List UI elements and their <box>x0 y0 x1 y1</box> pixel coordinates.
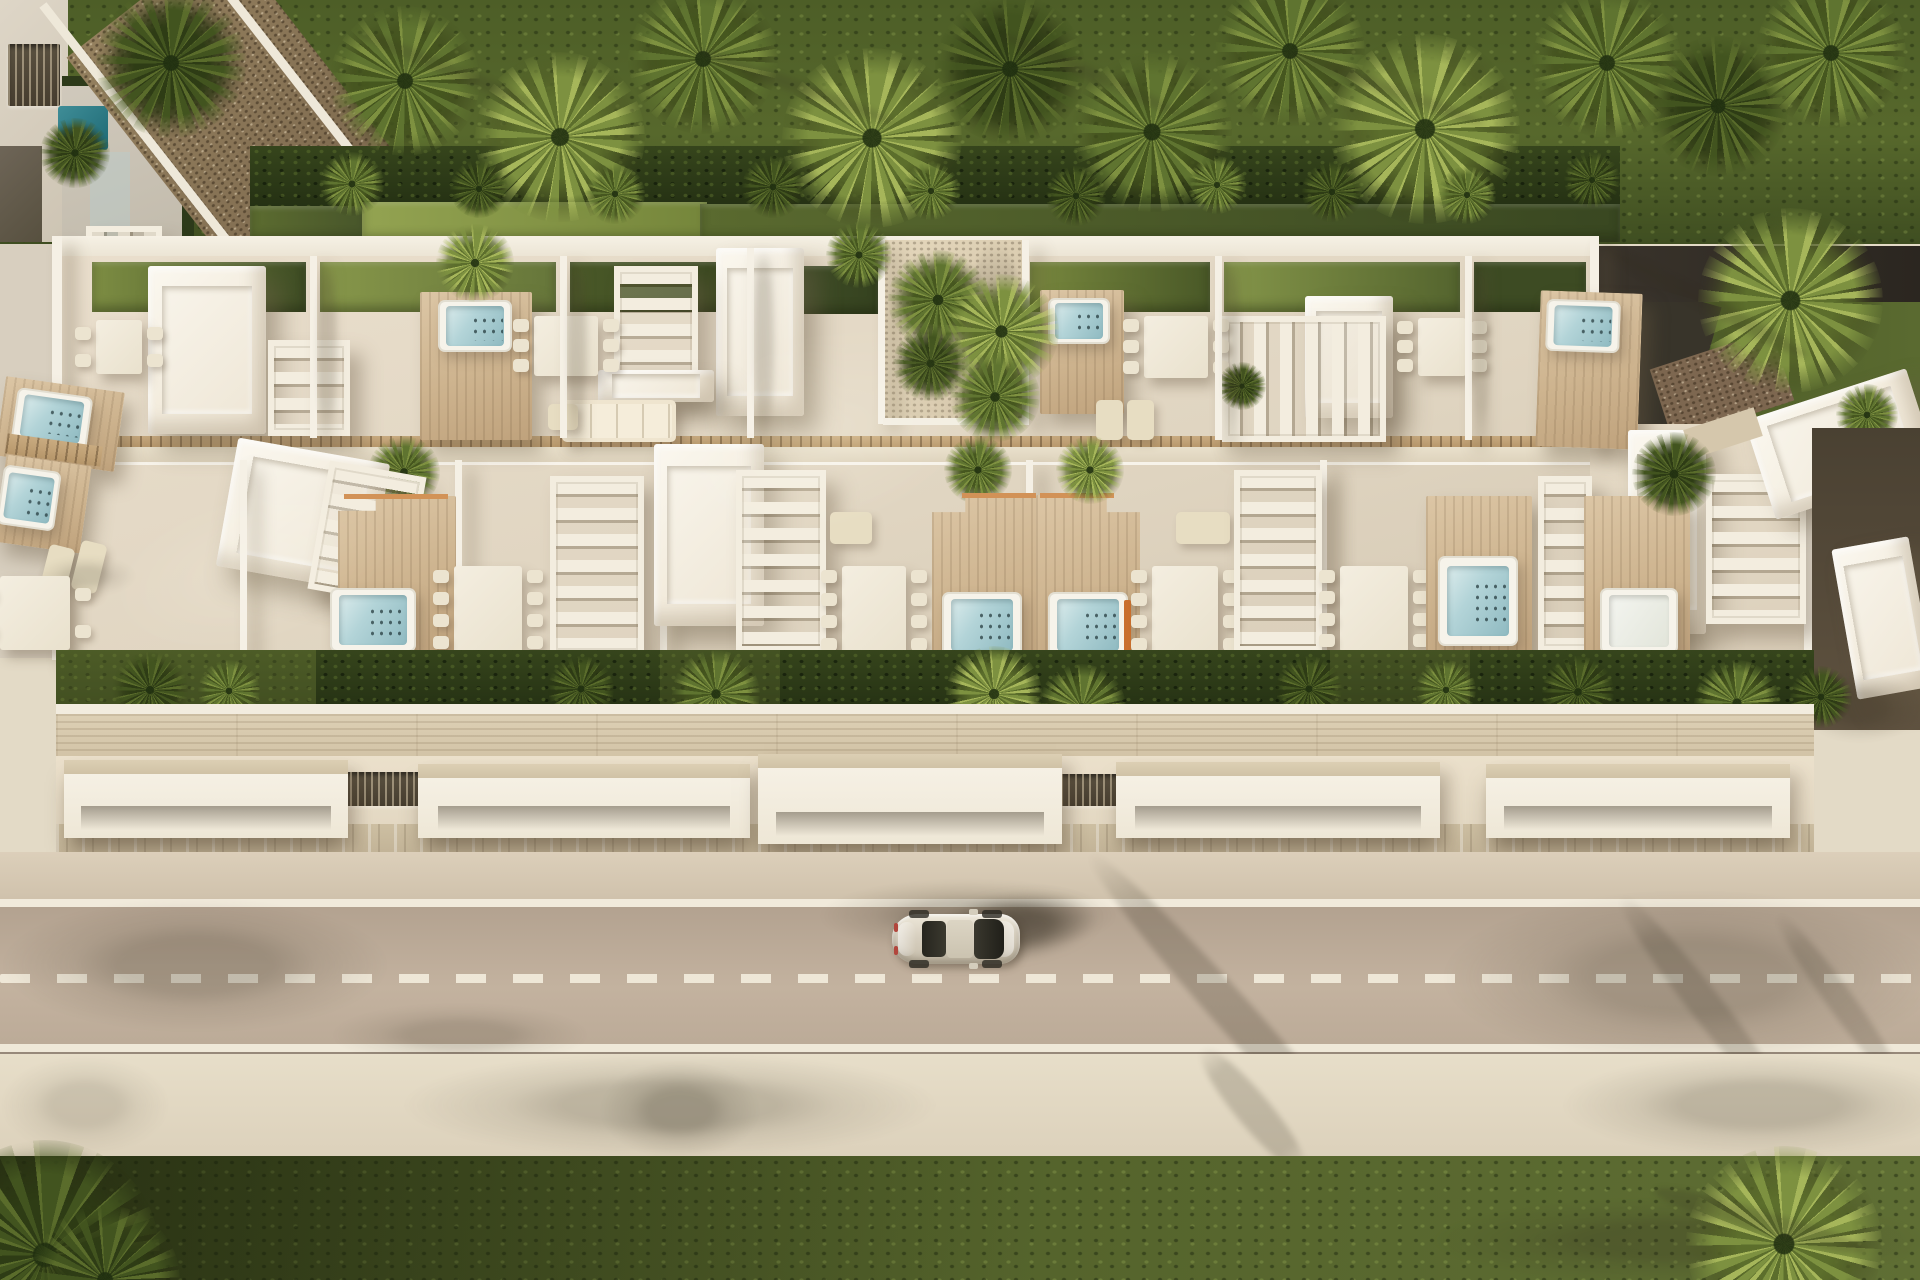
jacuzzi-water <box>1609 595 1670 647</box>
aerial-render <box>0 0 1920 1280</box>
garden-palm <box>935 0 1085 144</box>
neighbor-window <box>8 44 60 106</box>
sun-lounger <box>1096 400 1123 440</box>
chair <box>1397 321 1413 334</box>
chair <box>1397 359 1413 372</box>
chair <box>911 638 927 651</box>
roof-box <box>148 266 266 434</box>
wall-shadow <box>317 258 337 436</box>
jacuzzi-jets <box>1578 314 1611 341</box>
chair <box>603 339 619 352</box>
sidewalk-shadow <box>600 1062 760 1158</box>
chair <box>433 636 449 649</box>
jacuzzi-jets <box>977 610 1012 643</box>
path-palm <box>1632 432 1716 516</box>
chair <box>1397 340 1413 353</box>
party-wall <box>310 256 317 438</box>
wall-shadow <box>1472 258 1490 438</box>
garden-bush <box>902 162 960 220</box>
chair <box>527 570 543 583</box>
jacuzzi-jets <box>23 484 52 517</box>
dining-table <box>842 566 906 656</box>
chair <box>1123 319 1139 332</box>
car-taillight <box>894 946 898 955</box>
neighbor-bush <box>40 118 110 188</box>
jacuzzi-jets <box>471 315 504 341</box>
facade-canopy <box>64 760 348 838</box>
car-mirror <box>969 963 978 969</box>
chair <box>821 615 837 628</box>
dining-table <box>96 320 142 374</box>
garden-bush <box>450 160 508 218</box>
stair-pergola <box>550 476 644 656</box>
garden-bush <box>320 152 384 216</box>
car-rear-glass <box>922 921 946 957</box>
garden-bush <box>1188 156 1246 214</box>
chair <box>821 638 837 651</box>
chair <box>147 327 163 340</box>
facade-canopy <box>758 754 1062 844</box>
chair <box>1123 340 1139 353</box>
chair <box>75 327 91 340</box>
facade-travertine <box>56 714 1814 758</box>
chair <box>1131 570 1147 583</box>
chair <box>527 614 543 627</box>
path-palm-large <box>1698 208 1883 393</box>
chair <box>513 359 529 372</box>
garden-bush <box>585 164 645 224</box>
chair <box>513 339 529 352</box>
chair <box>75 354 91 367</box>
garden-bush <box>1046 166 1106 226</box>
chair <box>911 570 927 583</box>
garden-bush <box>1564 152 1620 208</box>
party-wall <box>1215 256 1222 440</box>
car-wheel <box>909 960 929 968</box>
car-taillight <box>894 923 898 932</box>
chair <box>527 636 543 649</box>
chair <box>147 354 163 367</box>
chair <box>603 319 619 332</box>
front-parapet <box>56 704 1814 714</box>
car-mirror <box>969 909 978 915</box>
terrace-palm <box>1056 436 1124 504</box>
chair <box>1123 361 1139 374</box>
party-wall <box>560 256 567 438</box>
chair <box>1131 638 1147 651</box>
chair <box>1319 634 1335 647</box>
chair <box>1131 593 1147 606</box>
terrace-palm <box>436 224 514 302</box>
jacuzzi-lower <box>1438 556 1518 646</box>
car-wheel <box>909 910 929 918</box>
chair <box>1319 591 1335 604</box>
jacuzzi-jets <box>1083 610 1118 643</box>
jacuzzi-covered <box>1600 588 1678 654</box>
sun-lounger <box>1127 400 1154 440</box>
wall-shadow <box>1222 258 1240 438</box>
car-wheel <box>982 910 1002 918</box>
chair <box>1131 615 1147 628</box>
car-roof-panel <box>947 920 973 958</box>
dining-table <box>1152 566 1218 656</box>
car-trunk-shine <box>898 922 916 956</box>
car-wheel <box>982 960 1002 968</box>
garden-bush <box>742 156 804 218</box>
lounge-mat <box>1176 512 1230 544</box>
garden-bush <box>1302 162 1362 222</box>
garden-bush <box>1438 166 1496 224</box>
chair <box>821 593 837 606</box>
dining-table <box>454 566 522 654</box>
car <box>892 908 1020 970</box>
wall-shadow <box>567 258 587 436</box>
dining-table <box>1340 566 1408 652</box>
jacuzzi-jets <box>1473 581 1508 626</box>
party-wall <box>1465 256 1472 440</box>
jacuzzi-upper <box>1545 299 1621 354</box>
car-windshield <box>974 919 1004 959</box>
jacuzzi-jets <box>45 407 82 438</box>
stair-pergola <box>1234 470 1322 652</box>
dining-table <box>1144 316 1208 378</box>
chair <box>1319 613 1335 626</box>
jacuzzi-lower <box>1048 592 1128 658</box>
jacuzzi-jets <box>1075 311 1102 334</box>
facade-canopy <box>418 764 750 838</box>
neighbor-dark-wing <box>0 146 42 242</box>
chair <box>821 570 837 583</box>
chair <box>1319 570 1335 583</box>
sidewalk-shadow <box>0 1056 170 1154</box>
chair <box>911 615 927 628</box>
facade-canopy <box>1116 762 1440 838</box>
chair <box>527 592 543 605</box>
jacuzzi-upper <box>438 300 512 352</box>
stair-pergola <box>268 340 350 436</box>
jacuzzi-towel <box>1124 600 1131 654</box>
sidewalk-shadow <box>1560 1054 1920 1156</box>
dining-table <box>1418 318 1466 376</box>
chair <box>513 319 529 332</box>
facade-canopy <box>1486 764 1790 838</box>
chair <box>911 593 927 606</box>
